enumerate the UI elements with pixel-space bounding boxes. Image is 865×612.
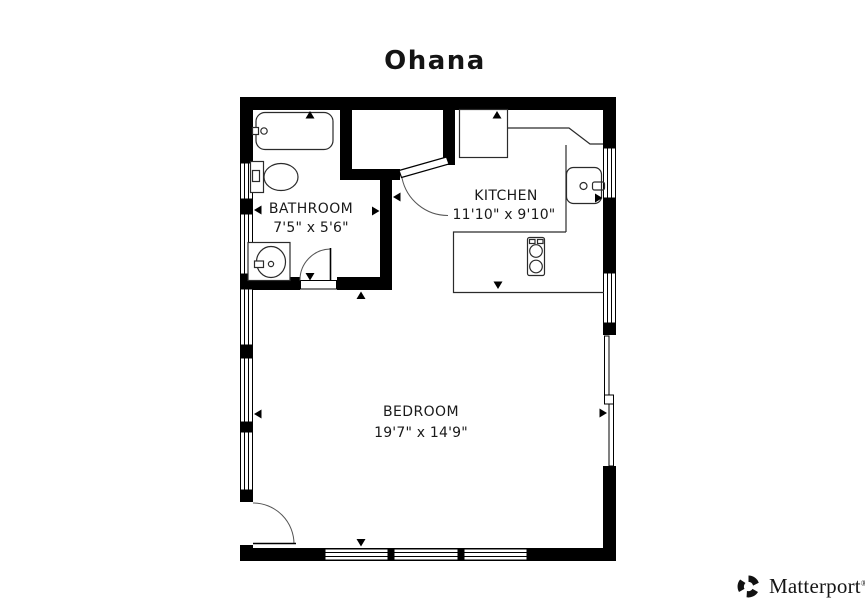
arrow-left-icon: [393, 193, 401, 202]
arrow-down-icon: [357, 539, 366, 547]
kitchen-dimensions: 11'10" x 9'10": [453, 207, 556, 223]
window: [241, 358, 253, 422]
window: [325, 549, 388, 560]
bedroom-dimensions: 19'7" x 14'9": [374, 425, 468, 441]
cooktop-icon: [528, 238, 545, 276]
arrow-left-icon: [254, 206, 262, 215]
matterport-pinwheel-icon: [735, 573, 762, 600]
arrow-down-icon: [494, 282, 503, 290]
floor-plan-page: { "page": { "title": "Ohana", "backgroun…: [0, 0, 865, 612]
window: [241, 289, 253, 345]
wall-bathroom-south-e: [337, 277, 392, 290]
window: [394, 549, 458, 560]
arrow-left-icon: [254, 410, 262, 419]
trademark-symbol: ®: [861, 579, 865, 588]
dimension-arrows: [254, 111, 607, 547]
bathroom-label: BATHROOM: [269, 201, 353, 217]
arrow-down-icon: [306, 273, 315, 281]
arrow-up-icon: [493, 111, 502, 119]
brand-wordmark: Matterport®: [769, 574, 865, 599]
toilet-icon: [251, 162, 299, 193]
wall-top: [240, 97, 616, 110]
wall-bathroom-east: [380, 170, 392, 290]
bathroom-dimensions: 7'5" x 5'6": [273, 220, 349, 236]
arrow-right-icon: [372, 207, 380, 216]
arrow-up-icon: [357, 292, 366, 300]
vanity-sink-icon: [248, 243, 290, 281]
brand-logo: Matterport®: [735, 570, 865, 602]
window: [604, 148, 616, 198]
window: [241, 432, 253, 490]
window: [604, 273, 616, 323]
bedroom-label: BEDROOM: [383, 404, 459, 420]
opening-bedroom-entry: [239, 502, 254, 545]
bathroom-door-icon: [300, 248, 337, 289]
bathtub-icon: [253, 113, 334, 150]
floor-plan-drawing: BATHROOM 7'5" x 5'6" KITCHEN 11'10" x 9'…: [0, 0, 865, 612]
bathroom-fixtures: [248, 113, 333, 281]
bedroom-door-icon: [253, 503, 296, 544]
brand-name: Matterport: [769, 574, 861, 598]
window: [464, 549, 527, 560]
entry-door-icon: [399, 157, 449, 216]
room-labels: BATHROOM 7'5" x 5'6" KITCHEN 11'10" x 9'…: [269, 188, 556, 441]
wall-alcove-east: [443, 110, 455, 165]
kitchen-label: KITCHEN: [474, 188, 537, 204]
